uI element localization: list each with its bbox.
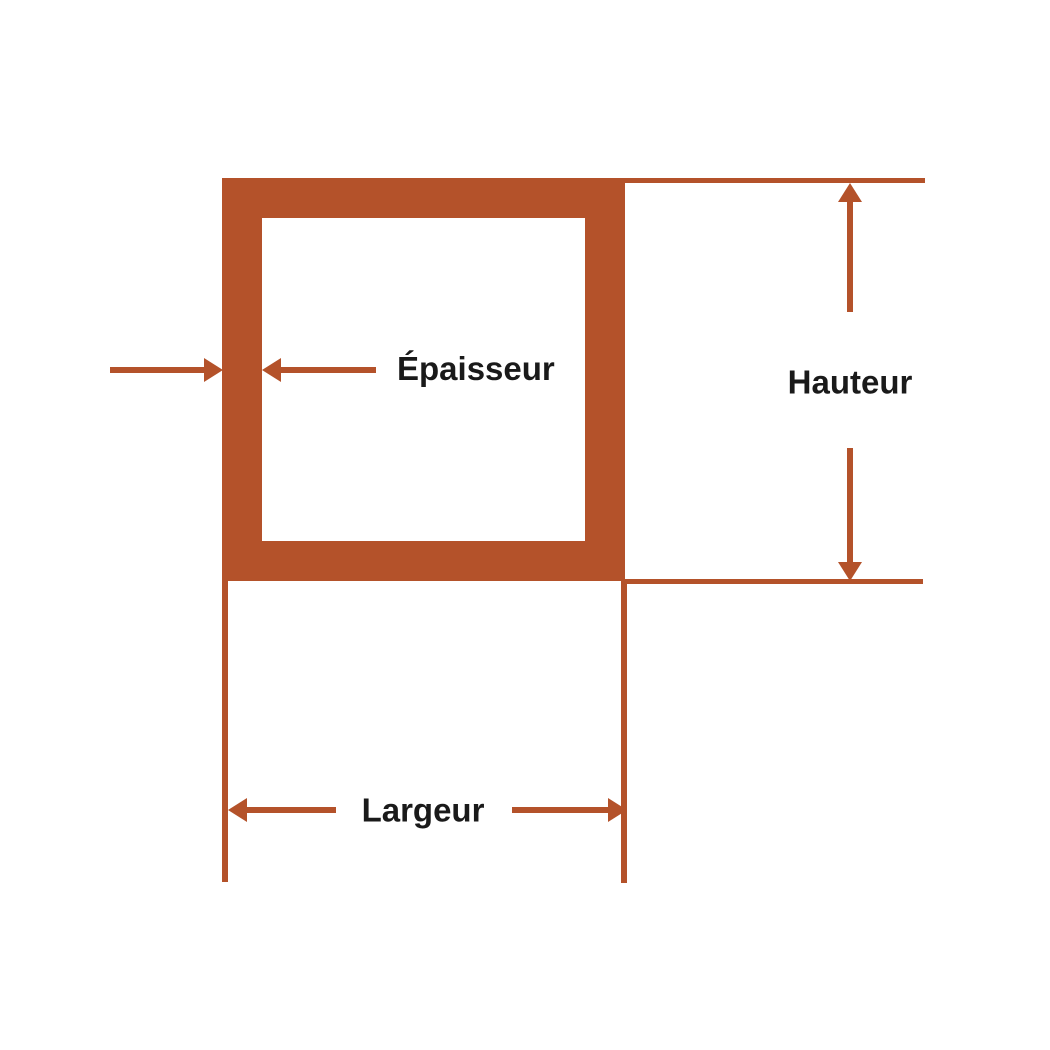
hauteur-extension-line-top bbox=[625, 178, 925, 183]
largeur-label: Largeur bbox=[362, 794, 485, 827]
hauteur-label: Hauteur bbox=[788, 366, 913, 399]
largeur-extension-line-right bbox=[621, 581, 627, 883]
largeur-left-arrow-shaft bbox=[246, 807, 336, 813]
largeur-arrowhead-left-icon bbox=[228, 798, 247, 822]
epaisseur-inner-arrowhead-icon bbox=[262, 358, 281, 382]
largeur-extension-line-left bbox=[222, 581, 228, 882]
epaisseur-label: Épaisseur bbox=[397, 352, 555, 385]
largeur-right-arrow-shaft bbox=[512, 807, 609, 813]
hauteur-extension-line-bottom bbox=[625, 579, 923, 584]
largeur-arrowhead-right-icon bbox=[608, 798, 627, 822]
epaisseur-outer-arrow-shaft bbox=[110, 367, 206, 373]
hauteur-arrowhead-up-icon bbox=[838, 183, 862, 202]
epaisseur-outer-arrowhead-icon bbox=[204, 358, 223, 382]
epaisseur-inner-arrow-shaft bbox=[280, 367, 376, 373]
dimension-diagram: Épaisseur Hauteur Largeur bbox=[0, 0, 1050, 1050]
hauteur-arrowhead-down-icon bbox=[838, 562, 862, 581]
hauteur-arrow-down-shaft bbox=[847, 448, 853, 563]
hauteur-arrow-up-shaft bbox=[847, 201, 853, 312]
